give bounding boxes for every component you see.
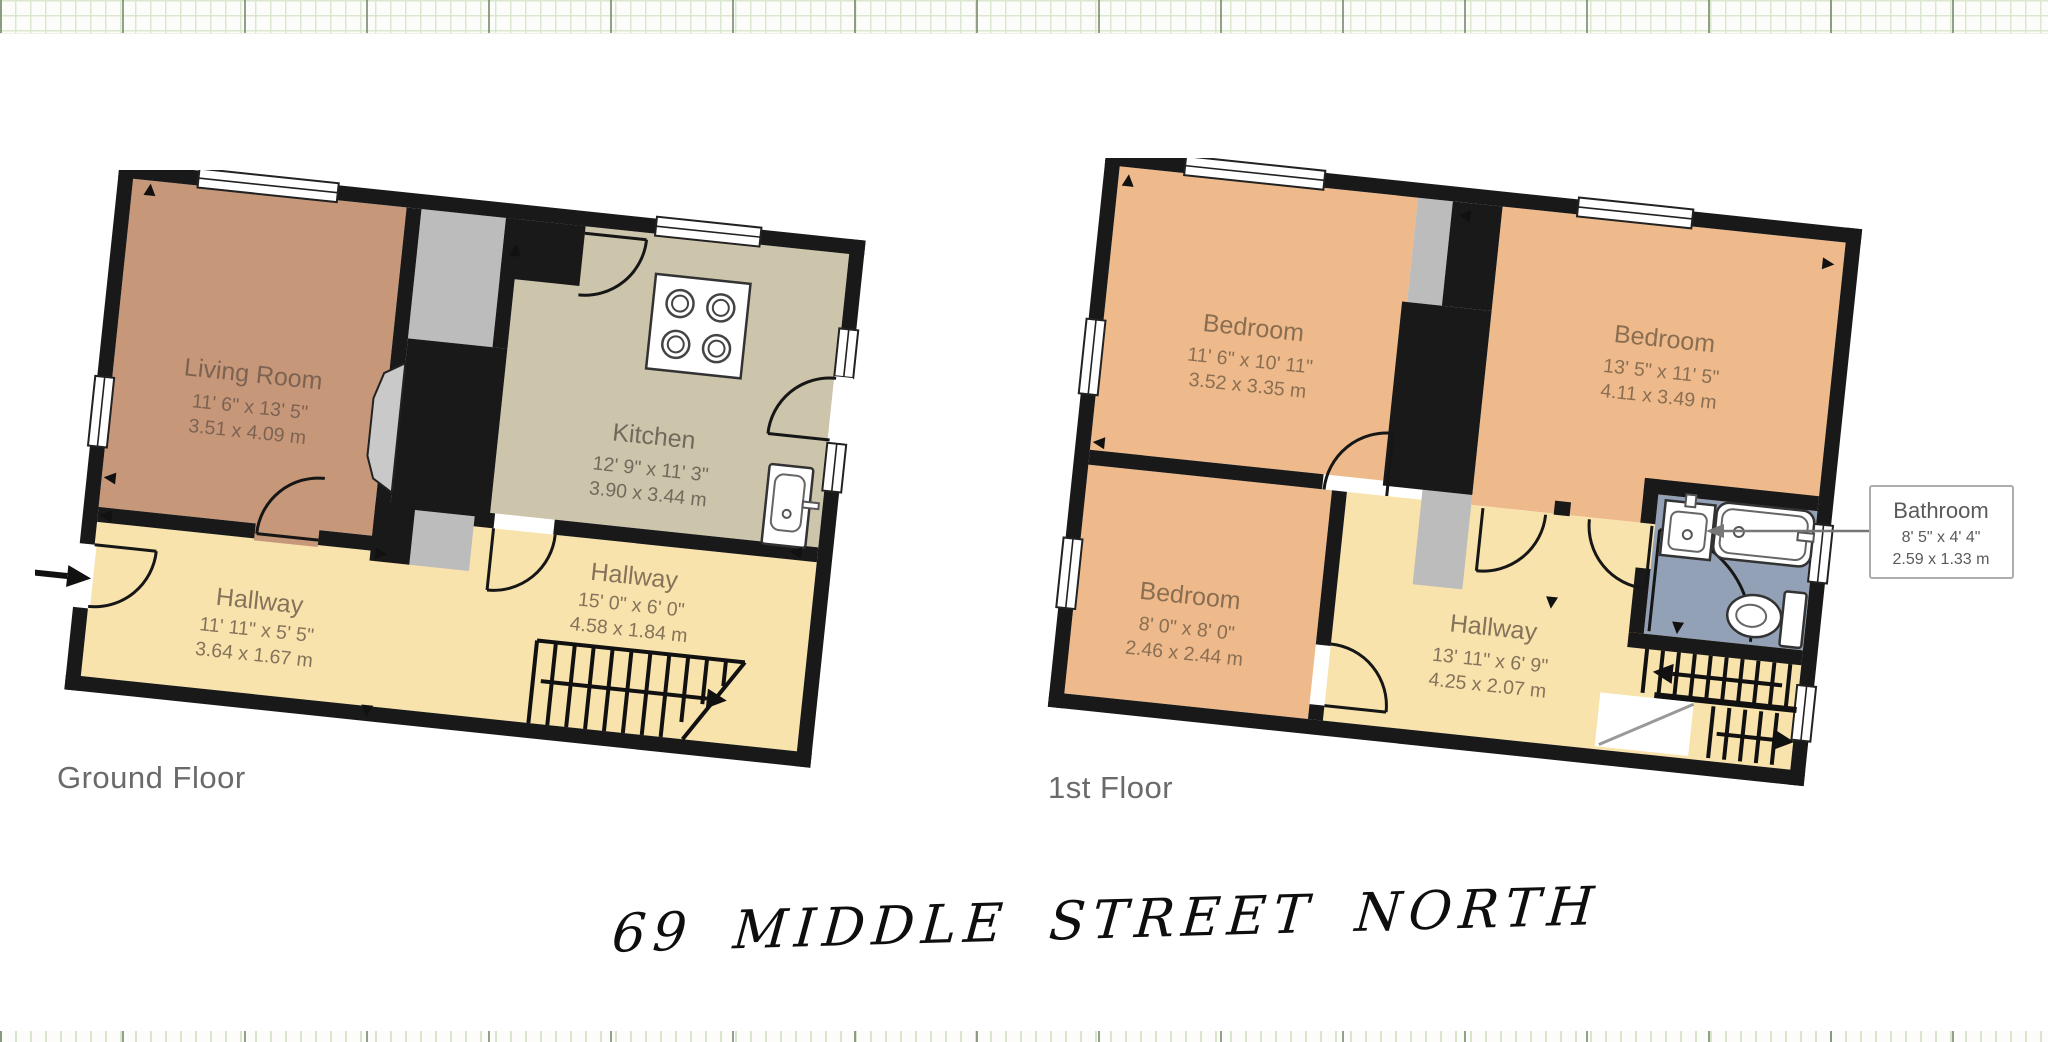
- floorplan-page: Living Room 11' 6" x 13' 5" 3.51 x 4.09 …: [0, 0, 2048, 1042]
- handwritten-address-title: 69 MIDDLE STREET NORTH: [610, 880, 1454, 965]
- ground-closet-area: [408, 209, 506, 347]
- first-floor-label: 1st Floor: [1048, 770, 1173, 806]
- bathroom-callout-metric: 2.59 x 1.33 m: [1893, 551, 1990, 568]
- landing-grey-strip-bottom: [1413, 490, 1473, 590]
- bathroom-callout-imperial: 8' 5" x 4' 4": [1902, 529, 1981, 546]
- ground-floor-plan: Living Room 11' 6" x 13' 5" 3.51 x 4.09 …: [35, 170, 935, 850]
- living-room-area: [99, 179, 407, 536]
- first-floor-plan: Bedroom 11' 6" x 10' 11" 3.52 x 3.35 m B…: [1005, 158, 2045, 848]
- first-floor-rotated-group: Bedroom 11' 6" x 10' 11" 3.52 x 3.35 m B…: [1046, 158, 1865, 786]
- graph-paper-strip-bottom: [0, 1031, 2048, 1042]
- graph-paper-strip-top: [0, 0, 2048, 34]
- bathtub-icon: [1712, 502, 1816, 568]
- hallway-grey-patch: [409, 510, 474, 571]
- ground-floor-rotated-group: Living Room 11' 6" x 13' 5" 3.51 x 4.09 …: [35, 170, 868, 768]
- ground-floor-label: Ground Floor: [57, 760, 246, 796]
- stove-icon: [646, 274, 750, 378]
- bathroom-callout-label: Bathroom: [1893, 498, 1988, 523]
